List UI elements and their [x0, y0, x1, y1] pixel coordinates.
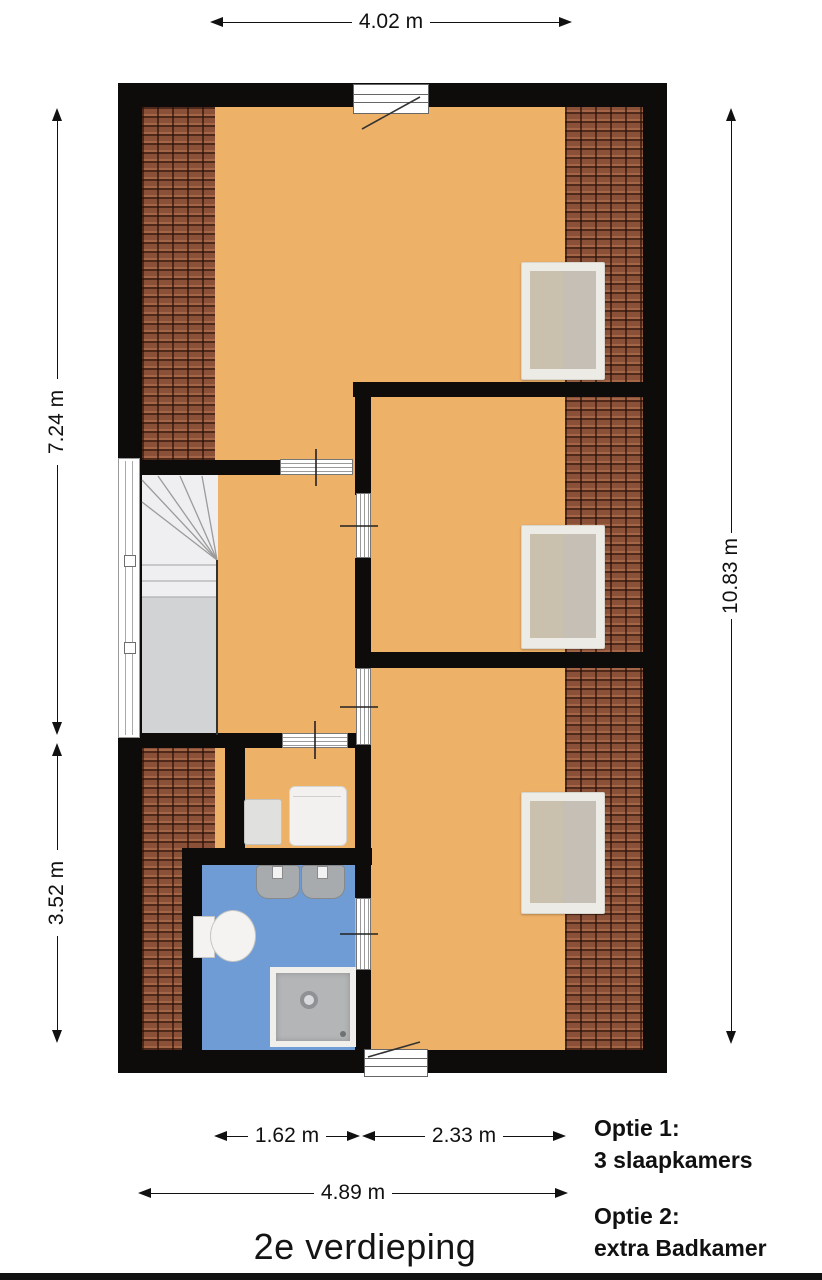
window-bottom	[364, 1049, 428, 1077]
arrow-right-icon	[555, 1188, 568, 1198]
roof-window-pane	[530, 801, 563, 903]
dimension-line	[151, 1193, 314, 1194]
dimension-label: 4.89 m	[314, 1181, 392, 1205]
window-handle-icon	[124, 555, 136, 567]
window-frame-line	[354, 102, 428, 103]
dimension-line	[57, 756, 58, 850]
wall-segment	[353, 382, 643, 397]
dimension-label: 2.33 m	[425, 1124, 503, 1148]
dimension-label: 3.52 m	[45, 861, 69, 925]
shower-drain-icon	[300, 991, 318, 1009]
window-frame-line	[354, 94, 428, 95]
arrow-right-icon	[559, 17, 572, 27]
door-small-room	[282, 733, 348, 748]
window-handle-icon	[124, 642, 136, 654]
dimension-line	[227, 1136, 248, 1137]
toilet-bowl	[210, 910, 256, 962]
floor-title: 2e verdieping	[160, 1226, 570, 1268]
dimension-line	[57, 936, 58, 1030]
dimension-line	[731, 619, 732, 1031]
arrow-up-icon	[52, 108, 62, 121]
dimension-line	[57, 121, 58, 379]
wall-segment	[118, 733, 282, 748]
option-1-block: Optie 1: 3 slaapkamers	[594, 1112, 814, 1176]
dimension-bottom-left: 1.62 m	[214, 1124, 360, 1148]
roof-window-pane	[563, 801, 596, 903]
dimension-right: 10.83 m	[718, 108, 744, 1044]
dimension-label: 1.62 m	[248, 1124, 326, 1148]
staircase-winders	[142, 475, 218, 597]
roof-window-pane	[563, 534, 596, 638]
dimension-line	[375, 1136, 425, 1137]
option-1-label: Optie 1:	[594, 1112, 814, 1144]
wall-segment	[182, 848, 372, 865]
dimension-label: 10.83 m	[719, 538, 743, 614]
dimension-left-upper: 7.24 m	[44, 108, 70, 735]
arrow-up-icon	[52, 743, 62, 756]
option-2-label: Optie 2:	[594, 1200, 814, 1232]
arrow-down-icon	[52, 722, 62, 735]
wall-segment	[355, 558, 371, 668]
option-1-text: 3 slaapkamers	[594, 1144, 814, 1176]
window-frame-line	[125, 461, 126, 735]
drain-dot-icon	[340, 1031, 346, 1037]
dimension-line	[731, 121, 732, 533]
window-top	[353, 84, 429, 114]
bottom-edge-bar	[0, 1273, 822, 1280]
dimension-line	[57, 465, 58, 723]
roof-window-pane	[530, 534, 563, 638]
dimension-top: 4.02 m	[210, 10, 572, 34]
wall-segment	[225, 733, 245, 863]
arrow-down-icon	[52, 1030, 62, 1043]
dimension-line	[326, 1136, 347, 1137]
arrow-up-icon	[726, 108, 736, 121]
dimension-line	[430, 22, 559, 23]
door-bathroom	[356, 898, 371, 970]
roof-strip-left-top	[142, 107, 215, 460]
cabinet	[244, 799, 282, 845]
wall-segment	[355, 382, 371, 495]
dimension-line	[503, 1136, 553, 1137]
arrow-left-icon	[214, 1131, 227, 1141]
arrow-left-icon	[210, 17, 223, 27]
roof-window	[521, 525, 605, 649]
dimension-bottom-right: 2.33 m	[362, 1124, 566, 1148]
staircase-landing	[142, 597, 218, 735]
door-landing-top	[280, 459, 353, 475]
dimension-line	[223, 22, 352, 23]
wall-segment	[118, 460, 280, 475]
toilet-unit	[289, 786, 347, 846]
faucet-icon	[272, 866, 283, 879]
door-bedroom-2	[356, 493, 371, 558]
door-bedroom-3	[356, 668, 371, 745]
roof-window	[521, 262, 605, 380]
dimension-label: 7.24 m	[45, 389, 69, 453]
dimension-label: 4.02 m	[352, 10, 430, 34]
dimension-label-box: 10.83 m	[718, 533, 744, 619]
roof-window-pane	[530, 271, 563, 369]
arrow-left-icon	[362, 1131, 375, 1141]
option-2-text: extra Badkamer	[594, 1232, 814, 1264]
wall-segment	[355, 970, 371, 1050]
dimension-line	[392, 1193, 555, 1194]
window-frame-line	[132, 461, 133, 735]
dimension-left-lower: 3.52 m	[44, 743, 70, 1043]
wall-segment	[355, 745, 371, 898]
dimension-label-box: 3.52 m	[44, 850, 70, 936]
wall-segment	[355, 652, 643, 668]
arrow-down-icon	[726, 1031, 736, 1044]
floorplan-page: 4.02 m 7.24 m 3.52 m 10.83 m 1.62 m	[0, 0, 822, 1280]
window-frame-line	[365, 1066, 427, 1067]
roof-window-pane	[563, 271, 596, 369]
option-2-block: Optie 2: extra Badkamer	[594, 1200, 814, 1264]
window-stairwell	[118, 458, 140, 738]
faucet-icon	[317, 866, 328, 879]
dimension-bottom-total: 4.89 m	[138, 1181, 568, 1205]
toilet-unit-line	[293, 796, 341, 797]
arrow-right-icon	[553, 1131, 566, 1141]
window-frame-line	[365, 1058, 427, 1059]
dimension-label-box: 7.24 m	[44, 379, 70, 465]
arrow-right-icon	[347, 1131, 360, 1141]
arrow-left-icon	[138, 1188, 151, 1198]
roof-window	[521, 792, 605, 914]
